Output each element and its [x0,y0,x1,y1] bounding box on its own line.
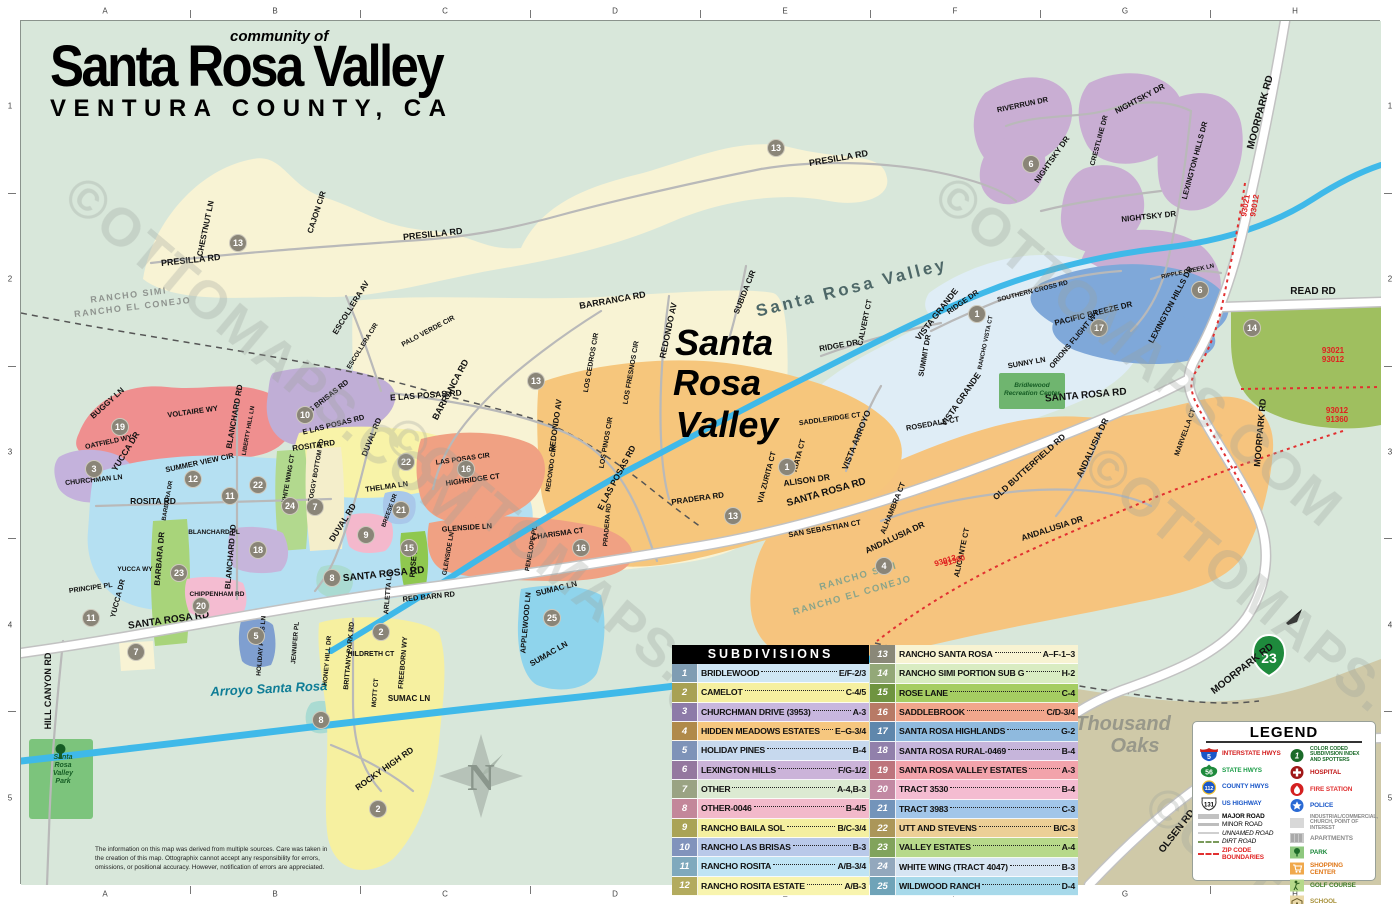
grid-row-label-left: 1 [8,102,12,111]
subdivision-grid-ref: A/B-3 [844,881,866,891]
subdivision-grid-ref: A/B-3/4 [837,861,866,871]
subdivision-grid-ref: C-3 [1062,804,1075,814]
subdivision-row: 1BRIDLEWOODE/F-2/3 [672,664,869,683]
spotter-number: 13 [728,511,738,521]
legend-item-us: 131US HIGHWAY [1198,796,1282,811]
grid-column-label-top: A [102,7,107,16]
poi-label: Recreation Center [1004,390,1060,397]
spotter-number: 24 [285,501,295,511]
legend-label: GOLF COURSE [1310,882,1356,889]
legend-label: PARK [1310,849,1327,856]
spotter-number: 3 [91,464,96,474]
subdivision-number: 17 [870,722,896,740]
subdivision-name-text: RANCHO BAILA SOL [701,823,785,833]
poi-label: Rosa [54,762,71,769]
subdivision-name-text: HOLIDAY PINES [701,745,765,755]
leader-dots [1026,671,1059,672]
subdivision-row: 22UTT AND STEVENSB/C-3 [870,819,1078,838]
subdivision-name: SANTA ROSA VALLEY ESTATESA-3 [896,761,1078,779]
subdivision-number: 2 [672,683,698,701]
subdivisions-header: SUBDIVISIONS [672,645,869,664]
leader-dots [1008,749,1060,750]
leader-dots [787,826,836,827]
subdivision-grid-ref: B-4 [1062,746,1075,756]
subdivision-grid-ref: B-4 [853,745,866,755]
subdivision-row: 23VALLEY ESTATESA-4 [870,838,1078,857]
subdivision-number: 14 [870,664,896,682]
us-shield-icon: 131 [1198,796,1219,811]
spotter-number: 18 [253,545,263,555]
legend-label: SHOPPING CENTER [1310,862,1370,876]
minor-road-icon [1198,823,1219,826]
leader-dots [979,826,1052,827]
subdivision-grid-ref: A-3 [1062,765,1075,775]
legend-left-column: 5INTERSTATE HWYS56STATE HWYS112COUNTY HW… [1198,745,1282,904]
subdivision-name: RANCHO LAS BRISASB-3 [698,838,869,856]
spotter-number: 8 [329,573,334,583]
subdivision-name-text: OTHER [701,784,730,794]
spotter-number: 5 [253,631,258,641]
fire-icon [1286,782,1307,797]
legend-label: INDUSTRIAL/COMMERCIAL, CHURCH, POINT OF … [1310,815,1378,832]
subdivision-name-text: CHURCHMAN DRIVE (3953) [701,707,811,717]
subdivision-grid-ref: B-3 [1062,862,1075,872]
subdivision-name: VALLEY ESTATESA-4 [896,838,1078,856]
subdivision-name-text: ROSE LANE [899,688,948,698]
legend-item-fire: FIRE STATION [1286,782,1370,797]
spotter-number: 11 [86,613,96,623]
subdivision-name-text: SADDLEBROOK [899,707,965,717]
spotter-number: 22 [253,480,263,490]
grid-tick [8,366,16,367]
subdivision-name: HOLIDAY PINESB-4 [698,741,869,759]
leader-dots [982,884,1059,885]
subdivision-grid-ref: G-2 [1061,726,1075,736]
subdivision-grid-ref: F/G-1/2 [838,765,866,775]
poi-label: Park [55,778,71,785]
grid-tick [1384,193,1392,194]
subdivision-row: 20TRACT 3530B-4 [870,780,1078,799]
subdivision-name: RANCHO SIMI PORTION SUB GH-2 [896,664,1078,682]
spotter-number: 6 [1197,285,1202,295]
subdivision-number: 11 [672,857,698,875]
subdivision-row: 10RANCHO LAS BRISASB-3 [672,838,869,857]
grid-column-label-bottom: A [102,890,107,899]
subdivision-number: 10 [672,838,698,856]
grid-tick [1210,10,1211,18]
spotter-number: 19 [115,422,125,432]
state-shield-icon: 56 [1198,763,1219,778]
shopping-icon [1286,861,1307,876]
svg-text:112: 112 [1204,786,1213,792]
subdivisions-table-right: 13RANCHO SANTA ROSAA–F-1–314RANCHO SIMI … [870,645,1078,896]
subdivision-name-text: RANCHO ROSITA ESTATE [701,881,805,891]
subdivision-row: 13RANCHO SANTA ROSAA–F-1–3 [870,645,1078,664]
park-icon [1286,845,1307,860]
legend: LEGEND 5INTERSTATE HWYS56STATE HWYS112CO… [1192,721,1376,881]
subdivision-row: 7OTHERA-4,B-3 [672,780,869,799]
grid-column-label-top: C [442,7,448,16]
legend-label: APARTMENTS [1310,835,1353,842]
hospital-icon [1286,765,1307,780]
subdivision-grid-ref: D-4 [1062,881,1075,891]
subdivision-number: 4 [672,722,698,740]
grid-column-label-top: B [272,7,277,16]
subdivision-grid-ref: B-4 [1062,784,1075,794]
subdivision-grid-ref: B/C-3 [1053,823,1075,833]
spotter-number: 23 [174,568,184,578]
legend-item-major: MAJOR ROAD [1198,813,1282,820]
subdivision-row: 2CAMELOTC-4/5 [672,683,869,702]
subdivision-number: 25 [870,877,896,895]
spotter-number: 13 [771,143,781,153]
region-label: Valley [676,404,781,445]
poi-label: Santa [53,754,72,761]
subdivision-row: 16SADDLEBROOKC/D-3/4 [870,703,1078,722]
subdivision-name: SANTA ROSA RURAL-0469B-4 [896,742,1078,760]
legend-label: MAJOR ROAD [1222,813,1265,820]
spotter-number: 20 [196,601,206,611]
subdivision-name-text: SANTA ROSA HIGHLANDS [899,726,1005,736]
disclaimer-line: omissions, or positional accuracy. Howev… [95,864,440,873]
subdivision-number: 12 [672,877,698,895]
disclaimer-line: the creation of this map. Ottographix ca… [95,855,440,864]
subdivision-number: 23 [870,838,896,856]
legend-label: US HIGHWAY [1222,800,1262,807]
poi-label: Valley [53,770,74,777]
grid-row-label-right: 1 [1388,102,1392,111]
legend-label: POLICE [1310,802,1333,809]
subdivision-grid-ref: A–F-1–3 [1043,649,1075,659]
subdivision-row: 19SANTA ROSA VALLEY ESTATESA-3 [870,761,1078,780]
legend-item-school: SCHOOL [1286,894,1370,904]
leader-dots [767,748,851,749]
subdivision-grid-ref: E/F-2/3 [839,668,866,678]
legend-label: MINOR ROAD [1222,821,1263,828]
grid-tick [1384,711,1392,712]
spotter-number: 1 [784,462,789,472]
subdivision-number: 9 [672,819,698,837]
subdivision-row: 6LEXINGTON HILLSF/G-1/2 [672,761,869,780]
spotter-number: 9 [363,530,368,540]
road-label: SUMAC LN [388,694,430,703]
subdivision-grid-ref: A-4 [1062,842,1075,852]
leader-dots [1007,729,1059,730]
legend-label: FIRE STATION [1310,786,1352,793]
subdivision-grid-ref: A-4,B-3 [837,784,866,794]
grid-tick [1384,366,1392,367]
subdivision-row: 17SANTA ROSA HIGHLANDSG-2 [870,722,1078,741]
spotter-number: 1 [974,309,979,319]
leader-dots [793,845,851,846]
legend-right-column: 1COLOR CODED SUBDIVISION INDEX AND SPOTT… [1286,745,1370,904]
grid-tick [870,10,871,18]
subdivision-grid-ref: C-4 [1062,688,1075,698]
spotter-number: 7 [312,502,317,512]
leader-dots [950,787,1059,788]
spotter-number: 2 [378,627,383,637]
grid-row-label-right: 4 [1388,620,1392,629]
leader-dots [807,884,843,885]
subdivision-row: 21TRACT 3983C-3 [870,800,1078,819]
subdivision-number: 24 [870,858,896,876]
spotter-number: 4 [881,561,886,571]
grid-row-label-left: 4 [8,620,12,629]
subdivision-grid-ref: B-4/5 [846,803,866,813]
svg-text:56: 56 [1205,770,1213,777]
legend-label: SCHOOL [1310,898,1337,904]
legend-item-shopping: SHOPPING CENTER [1286,861,1370,876]
spotter-number: 7 [133,647,138,657]
legend-label: INTERSTATE HWYS [1222,750,1281,757]
subdivision-row: 14RANCHO SIMI PORTION SUB GH-2 [870,664,1078,683]
zip-code-label: 91360 [1326,415,1349,424]
spotter-icon: 1 [1286,748,1307,763]
subdivision-number: 16 [870,703,896,721]
grid-column-label-top: G [1122,7,1128,16]
region-label: Thousand [1075,713,1171,735]
subdivision-number: 19 [870,761,896,779]
grid-tick [8,711,16,712]
title-block: community of Santa Rosa Valley VENTURA C… [50,28,495,123]
spotter-number: 8 [318,715,323,725]
leader-dots [822,729,833,730]
grid-tick [190,10,191,18]
subdivision-name-text: LEXINGTON HILLS [701,765,776,775]
police-icon [1286,798,1307,813]
grid-column-label-top: H [1292,7,1298,16]
subdivision-row: 4HIDDEN MEADOWS ESTATESE–G-3/4 [672,722,869,741]
legend-label: DIRT ROAD [1222,838,1256,845]
legend-item-industrial: INDUSTRIAL/COMMERCIAL, CHURCH, POINT OF … [1286,815,1370,832]
grid-tick [8,193,16,194]
subdivision-row: 18SANTA ROSA RURAL-0469B-4 [870,742,1078,761]
legend-item-county: 112COUNTY HWYS [1198,780,1282,795]
subdivision-name: TRACT 3983C-3 [896,800,1078,818]
subdivision-number: 15 [870,684,896,702]
grid-tick [700,10,701,18]
road-label: HILL CANYON RD [43,652,53,729]
legend-item-zip: ZIP CODE BOUNDARIES [1198,847,1282,861]
subdivision-number: 21 [870,800,896,818]
apartments-icon [1286,833,1307,843]
subdivision-row: 5HOLIDAY PINESB-4 [672,741,869,760]
subdivision-row: 11RANCHO ROSITAA/B-3/4 [672,857,869,876]
subdivision-grid-ref: B/C-3/4 [837,823,866,833]
unnamed-road-icon [1198,832,1219,834]
grid-row-label-left: 2 [8,275,12,284]
subdivision-name-text: RANCHO ROSITA [701,861,771,871]
spotter-number: 21 [396,505,406,515]
leader-dots [995,652,1041,653]
grid-tick [530,886,531,894]
leader-dots [773,864,835,865]
subdivision-name: HIDDEN MEADOWS ESTATESE–G-3/4 [698,722,869,740]
leader-dots [732,787,835,788]
svg-text:5: 5 [1207,754,1211,761]
zip-code-label: 93012 [1322,355,1345,364]
grid-column-label-top: D [612,7,618,16]
road-label: HILDRETH CT [348,651,395,658]
subdivision-name: BRIDLEWOODE/F-2/3 [698,664,869,682]
subdivision-name-text: WILDWOOD RANCH [899,881,980,891]
county-shield-icon: 112 [1198,780,1219,795]
grid-tick [360,886,361,894]
leader-dots [745,690,844,691]
poi-label: Bridlewood [1014,382,1050,389]
legend-title: LEGEND [1206,724,1362,743]
leader-dots [813,710,851,711]
subdivision-grid-ref: A-3 [853,707,866,717]
subdivision-name: WILDWOOD RANCHD-4 [896,877,1078,895]
subdivision-name: CAMELOTC-4/5 [698,683,869,701]
leader-dots [967,710,1045,711]
legend-item-spotter: 1COLOR CODED SUBDIVISION INDEX AND SPOTT… [1286,747,1370,764]
spotter-number: 13 [531,376,541,386]
subdivision-name-text: OTHER-0046 [701,803,752,813]
zip-code-label: 93012 [1326,406,1349,415]
grid-tick [8,538,16,539]
compass-n-label: N [467,757,494,799]
legend-item-park: PARK [1286,845,1370,860]
leader-dots [778,768,836,769]
legend-label: COUNTY HWYS [1222,783,1269,790]
subdivision-grid-ref: E–G-3/4 [835,726,866,736]
subdivision-name: UTT AND STEVENSB/C-3 [896,819,1078,837]
subdivisions-table-left: SUBDIVISIONS 1BRIDLEWOODE/F-2/32CAMELOTC… [672,645,869,896]
map-sheet: N 23 SantaRosaValleySanta Rosa ValleyArr… [0,0,1400,904]
subdivision-name-text: RANCHO SANTA ROSA [899,649,993,659]
spotter-number: 6 [1028,159,1033,169]
golf-icon [1286,878,1307,893]
subdivision-name-text: CAMELOT [701,687,743,697]
subdivision-name-text: RANCHO SIMI PORTION SUB G [899,668,1024,678]
subdivision-row: 9RANCHO BAILA SOLB/C-3/4 [672,819,869,838]
legend-item-apartments: APARTMENTS [1286,833,1370,843]
region-label: Santa [675,322,773,363]
subdivision-row: 25WILDWOOD RANCHD-4 [870,877,1078,896]
spotter-number: 11 [225,491,235,501]
subdivision-name: RANCHO BAILA SOLB/C-3/4 [698,819,869,837]
grid-row-label-left: 3 [8,448,12,457]
subdivision-name-text: TRACT 3983 [899,804,948,814]
grid-tick [360,10,361,18]
grid-row-label-left: 5 [8,793,12,802]
legend-item-golf: GOLF COURSE [1286,878,1370,893]
leader-dots [1010,865,1060,866]
subdivision-name: CHURCHMAN DRIVE (3953)A-3 [698,703,869,721]
subdivision-row: 3CHURCHMAN DRIVE (3953)A-3 [672,703,869,722]
legend-label: HOSPITAL [1310,769,1341,776]
legend-item-state: 56STATE HWYS [1198,763,1282,778]
disclaimer-text: The information on this map was derived … [95,846,440,873]
subdivision-grid-ref: C-4/5 [846,687,866,697]
legend-item-unnamed: UNNAMED ROAD [1198,830,1282,837]
road-label: READ RD [1290,286,1336,297]
grid-tick [530,10,531,18]
page-title: Santa Rosa Valley [50,39,442,94]
grid-column-label-bottom: B [272,890,277,899]
road-label: CHIPPENHAM RD [190,591,245,598]
subdivision-name: RANCHO ROSITAA/B-3/4 [698,857,869,875]
legend-label: STATE HWYS [1222,767,1262,774]
subdivision-name-text: BRIDLEWOOD [701,668,759,678]
spotter-number: 15 [404,543,414,553]
leader-dots [950,807,1059,808]
legend-item-dirt: DIRT ROAD [1198,838,1282,845]
subdivision-name-text: WHITE WING (TRACT 4047) [899,862,1008,872]
subdivision-name: RANCHO ROSITA ESTATEA/B-3 [698,877,869,895]
legend-label: ZIP CODE BOUNDARIES [1222,847,1282,861]
subdivision-name-text: SANTA ROSA RURAL-0469 [899,746,1006,756]
subdivision-row: 12RANCHO ROSITA ESTATEA/B-3 [672,877,869,896]
leader-dots [761,671,837,672]
disclaimer-line: The information on this map was derived … [95,846,440,855]
subdivision-name: OTHERA-4,B-3 [698,780,869,798]
road-label: YUCCA WY [117,566,153,573]
leader-dots [1029,768,1059,769]
subdivision-name: WHITE WING (TRACT 4047)B-3 [896,858,1078,876]
subdivision-number: 8 [672,799,698,817]
school-icon [1286,894,1307,904]
page-subtitle: VENTURA COUNTY, CA [50,95,495,123]
leader-dots [950,691,1060,692]
svg-text:131: 131 [1203,803,1214,809]
subdivision-row: 8OTHER-0046B-4/5 [672,799,869,818]
subdivision-name: TRACT 3530B-4 [896,780,1078,798]
subdivision-name-text: HIDDEN MEADOWS ESTATES [701,726,820,736]
legend-item-hospital: HOSPITAL [1286,765,1370,780]
subdivision-grid-ref: B-3 [853,842,866,852]
major-road-icon [1198,814,1219,819]
subdivision-name: LEXINGTON HILLSF/G-1/2 [698,761,869,779]
leader-dots [973,845,1060,846]
subdivision-number: 20 [870,780,896,798]
grid-tick [1384,538,1392,539]
grid-row-label-right: 3 [1388,448,1392,457]
grid-column-label-bottom: G [1122,890,1128,899]
legend-item-police: POLICE [1286,798,1370,813]
legend-label: UNNAMED ROAD [1222,830,1273,837]
subdivision-name: OTHER-0046B-4/5 [698,799,869,817]
spotter-number: 13 [233,238,243,248]
subdivision-name: RANCHO SANTA ROSAA–F-1–3 [896,645,1078,663]
industrial-icon [1286,818,1307,828]
legend-item-interstate: 5INTERSTATE HWYS [1198,747,1282,762]
subdivision-name-text: UTT AND STEVENS [899,823,977,833]
subdivision-number: 7 [672,780,698,798]
leader-dots [754,806,844,807]
subdivision-name: ROSE LANEC-4 [896,684,1078,702]
grid-tick [1040,10,1041,18]
grid-column-label-top: E [782,7,787,16]
subdivision-name: SANTA ROSA HIGHLANDSG-2 [896,722,1078,740]
subdivision-name-text: RANCHO LAS BRISAS [701,842,791,852]
subdivision-number: 6 [672,761,698,779]
spotter-number: 25 [547,613,557,623]
subdivision-number: 3 [672,703,698,721]
grid-tick [190,886,191,894]
subdivision-name: SADDLEBROOKC/D-3/4 [896,703,1078,721]
subdivision-name-text: TRACT 3530 [899,784,948,794]
subdivision-number: 13 [870,645,896,663]
legend-label: COLOR CODED SUBDIVISION INDEX AND SPOTTE… [1310,747,1370,764]
legend-item-minor: MINOR ROAD [1198,821,1282,828]
subdivision-number: 18 [870,742,896,760]
dirt-road-icon [1198,841,1219,843]
zip-code-label: 93021 [1322,346,1345,355]
svg-text:1: 1 [1294,751,1299,760]
